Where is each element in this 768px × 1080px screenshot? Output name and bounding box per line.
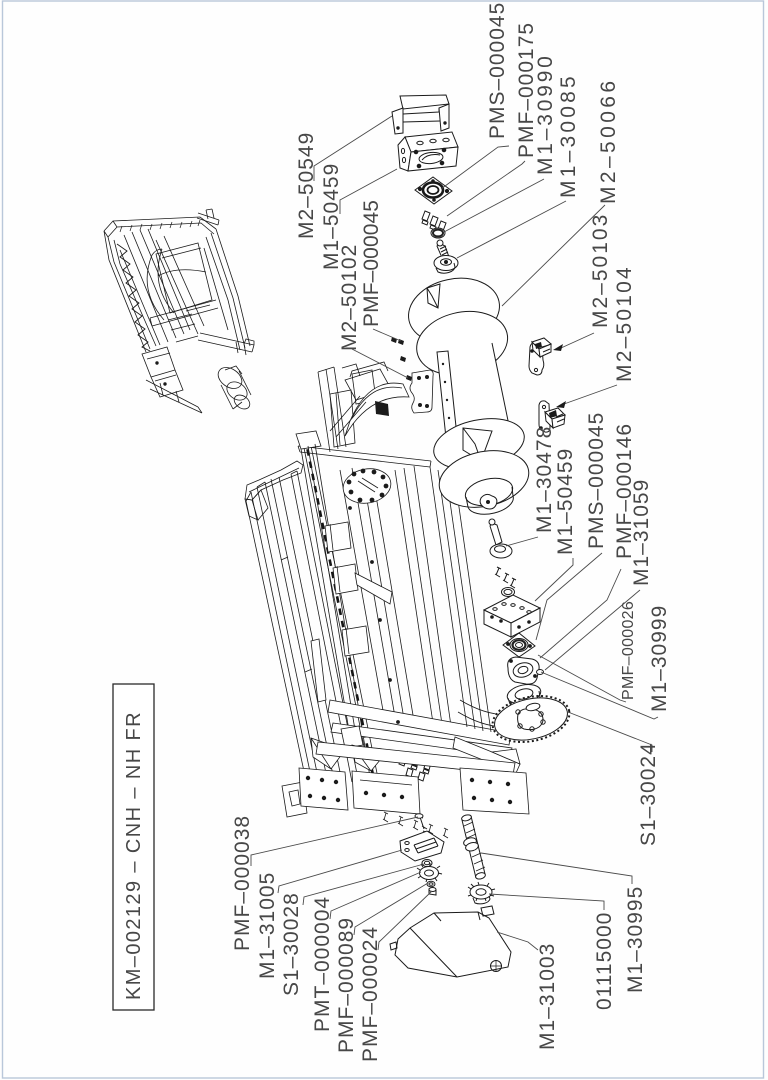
svg-text:M2–50104: M2–50104	[613, 265, 636, 382]
svg-text:M2–50103: M2–50103	[589, 213, 612, 328]
svg-text:PMS–000045: PMS–000045	[585, 412, 608, 549]
svg-text:M2–50102: M2–50102	[338, 244, 361, 351]
svg-text:PMF–000089: PMF–000089	[335, 917, 358, 1053]
svg-text:S1–30028: S1–30028	[280, 892, 303, 996]
svg-text:PMS–000045: PMS–000045	[486, 2, 509, 139]
svg-text:M1–30085: M1–30085	[557, 73, 580, 198]
svg-text:PMT–000004: PMT–000004	[311, 896, 334, 1032]
svg-text:M1–30990: M1–30990	[534, 53, 557, 175]
svg-text:PMF–000026: PMF–000026	[620, 601, 637, 700]
svg-text:PMF–000045: PMF–000045	[360, 200, 383, 327]
svg-text:M1–30999: M1–30999	[648, 605, 671, 712]
svg-text:M1–31003: M1–31003	[536, 943, 559, 1050]
svg-text:M1–31005: M1–31005	[256, 872, 279, 979]
svg-text:M1–50459: M1–50459	[554, 448, 577, 555]
svg-text:M1–30995: M1–30995	[624, 886, 647, 993]
svg-text:S1–30024: S1–30024	[637, 742, 660, 846]
svg-text:M1–31059: M1–31059	[630, 479, 653, 586]
svg-text:M1–30478: M1–30478	[533, 426, 556, 533]
svg-text:PMF–000038: PMF–000038	[231, 815, 254, 951]
svg-text:M2–50066: M2–50066	[597, 78, 620, 204]
svg-text:01115000: 01115000	[593, 912, 616, 1010]
svg-text:KM–002129 – CNH – NH FR: KM–002129 – CNH – NH FR	[123, 711, 145, 1000]
svg-text:M2–50549: M2–50549	[295, 132, 318, 239]
svg-text:PMF–000024: PMF–000024	[359, 926, 382, 1062]
